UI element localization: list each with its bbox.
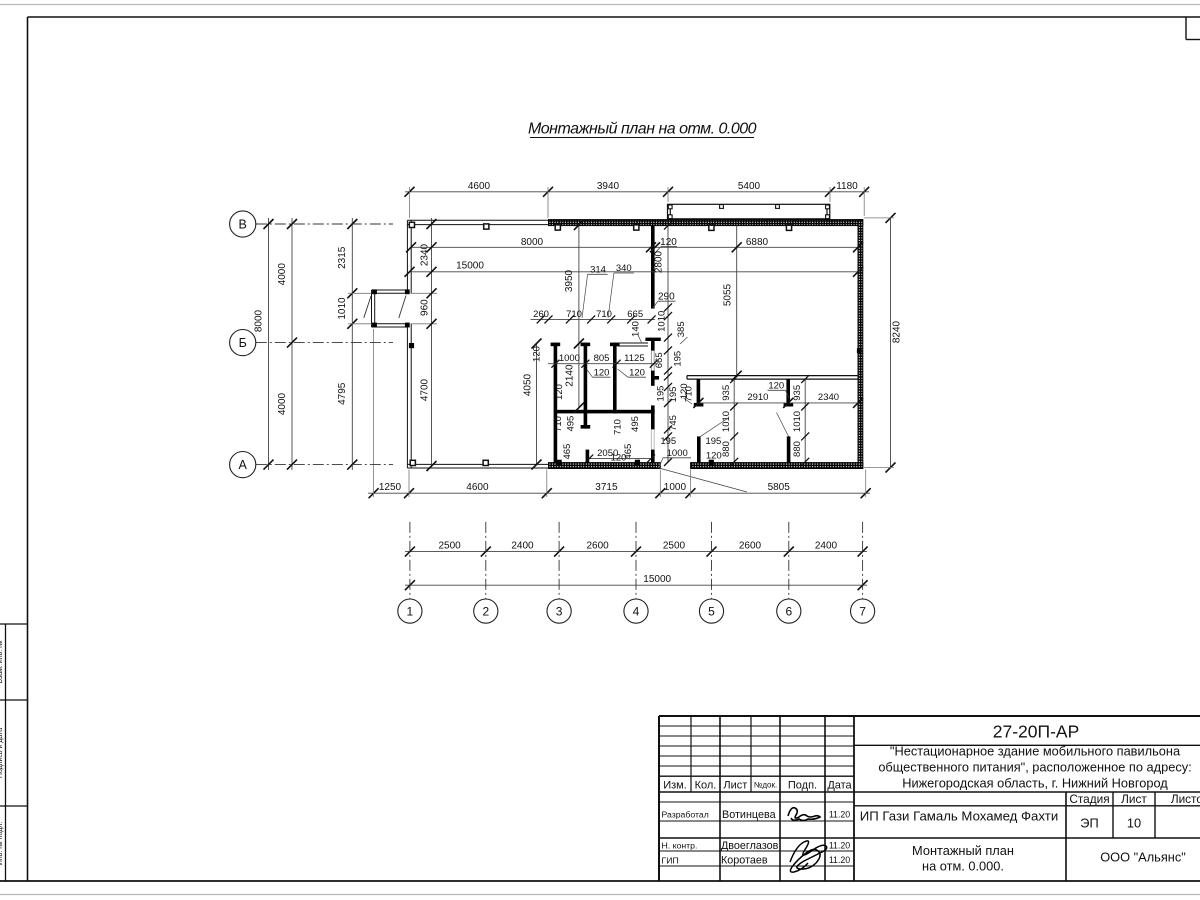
svg-text:2: 2	[482, 604, 489, 618]
svg-text:8000: 8000	[521, 237, 544, 248]
svg-text:495: 495	[630, 416, 641, 432]
svg-text:120: 120	[611, 453, 627, 464]
svg-text:140: 140	[631, 321, 642, 337]
svg-text:Н. контр.: Н. контр.	[662, 840, 698, 850]
svg-text:4050: 4050	[523, 373, 534, 396]
svg-text:Кол.: Кол.	[695, 779, 717, 791]
svg-text:1010: 1010	[657, 311, 668, 332]
svg-text:665: 665	[627, 309, 643, 320]
svg-text:195: 195	[668, 387, 679, 403]
svg-text:2800: 2800	[654, 250, 665, 273]
svg-text:Б: Б	[239, 336, 247, 350]
svg-text:В: В	[239, 218, 247, 232]
svg-text:710: 710	[613, 419, 624, 435]
svg-text:2500: 2500	[663, 540, 686, 551]
svg-text:710: 710	[566, 309, 582, 320]
svg-text:Взам. инв. №: Взам. инв. №	[0, 640, 4, 683]
svg-text:общественного питания", распол: общественного питания", расположенное по…	[878, 759, 1191, 774]
svg-text:1000: 1000	[664, 482, 687, 493]
svg-text:4795: 4795	[337, 382, 348, 405]
svg-text:5055: 5055	[723, 283, 734, 306]
svg-text:1010: 1010	[792, 411, 803, 432]
svg-text:Стадия: Стадия	[1069, 792, 1109, 806]
svg-text:8000: 8000	[254, 309, 265, 332]
svg-text:195: 195	[660, 436, 676, 447]
svg-text:195: 195	[673, 351, 684, 367]
svg-text:4700: 4700	[419, 378, 430, 401]
svg-text:120: 120	[594, 367, 610, 378]
svg-text:5805: 5805	[768, 482, 791, 493]
svg-text:465: 465	[562, 444, 573, 460]
svg-text:2400: 2400	[815, 540, 838, 551]
svg-text:1000: 1000	[559, 353, 580, 364]
svg-text:5400: 5400	[738, 181, 761, 192]
svg-text:935: 935	[721, 385, 732, 401]
svg-text:805: 805	[594, 353, 610, 364]
svg-text:11.20: 11.20	[829, 841, 850, 851]
svg-text:2600: 2600	[586, 540, 609, 551]
svg-text:1180: 1180	[836, 181, 858, 192]
svg-text:120: 120	[532, 346, 543, 362]
svg-text:4000: 4000	[277, 392, 288, 415]
svg-text:Коротаев: Коротаев	[721, 855, 768, 867]
svg-text:3: 3	[556, 604, 563, 618]
svg-text:880: 880	[792, 441, 803, 457]
svg-text:на отм. 0.000.: на отм. 0.000.	[922, 858, 1004, 873]
svg-text:340: 340	[616, 263, 632, 274]
svg-text:1250: 1250	[379, 482, 402, 493]
svg-text:Подп.: Подп.	[788, 779, 817, 791]
svg-text:Нижегородская область, г. Нижн: Нижегородская область, г. Нижний Новгоро…	[902, 775, 1168, 790]
svg-text:120: 120	[554, 384, 565, 400]
svg-text:4600: 4600	[466, 482, 489, 493]
svg-text:10: 10	[1127, 816, 1141, 831]
svg-text:710: 710	[684, 386, 695, 402]
svg-text:ГИП: ГИП	[662, 855, 679, 865]
svg-text:710: 710	[596, 309, 612, 320]
svg-text:495: 495	[566, 416, 577, 432]
svg-text:2140: 2140	[564, 364, 575, 387]
svg-text:1: 1	[407, 604, 414, 618]
svg-text:880: 880	[721, 441, 732, 457]
svg-text:2910: 2910	[747, 392, 768, 403]
svg-text:Монтажный план на отм. 0.000: Монтажный план на отм. 0.000	[528, 121, 757, 138]
svg-text:5: 5	[708, 604, 715, 618]
svg-text:745: 745	[668, 415, 679, 431]
svg-text:А: А	[239, 458, 248, 472]
svg-text:2340: 2340	[419, 243, 430, 266]
svg-text:4000: 4000	[277, 263, 288, 286]
svg-text:15000: 15000	[643, 574, 671, 585]
svg-text:195: 195	[705, 436, 721, 447]
svg-text:3950: 3950	[564, 269, 575, 292]
svg-text:1010: 1010	[337, 297, 348, 320]
svg-text:Монтажный план: Монтажный план	[912, 843, 1014, 858]
svg-text:120: 120	[706, 451, 722, 462]
svg-text:Вотинцева: Вотинцева	[722, 809, 776, 821]
svg-text:27-20П-АР: 27-20П-АР	[993, 722, 1080, 742]
svg-text:№док.: №док.	[754, 780, 777, 789]
svg-text:7: 7	[859, 604, 866, 618]
svg-text:"Нестационарное здание мобильн: "Нестационарное здание мобильного павиль…	[890, 744, 1181, 759]
svg-text:385: 385	[676, 321, 687, 337]
svg-text:Двоеглазов: Двоеглазов	[721, 840, 779, 852]
svg-text:ИП Гази Гамаль Мохамед Фахти: ИП Гази Гамаль Мохамед Фахти	[860, 809, 1058, 824]
svg-text:3940: 3940	[597, 181, 620, 192]
svg-text:Дата: Дата	[827, 779, 852, 791]
svg-text:Листов: Листов	[1171, 792, 1200, 806]
svg-text:2500: 2500	[438, 540, 461, 551]
svg-text:2400: 2400	[511, 540, 534, 551]
svg-text:8240: 8240	[891, 320, 902, 343]
svg-text:4600: 4600	[468, 181, 491, 192]
svg-text:3715: 3715	[595, 482, 618, 493]
svg-text:120: 120	[629, 367, 645, 378]
svg-text:Подпись и дата: Подпись и дата	[0, 728, 4, 778]
svg-text:Изм.: Изм.	[663, 779, 687, 791]
svg-text:195: 195	[656, 386, 667, 402]
svg-text:710: 710	[553, 416, 564, 432]
svg-text:Лист: Лист	[1121, 792, 1147, 806]
svg-text:314: 314	[590, 265, 606, 276]
svg-text:ЭП: ЭП	[1080, 816, 1098, 831]
svg-text:665: 665	[654, 352, 665, 368]
svg-text:4: 4	[633, 604, 640, 618]
svg-text:1125: 1125	[624, 353, 644, 364]
svg-text:6: 6	[785, 604, 792, 618]
svg-text:Лист: Лист	[723, 779, 747, 791]
svg-text:ООО "Альянс": ООО "Альянс"	[1100, 850, 1186, 865]
svg-text:Инв. № подл.: Инв. № подл.	[0, 822, 4, 866]
svg-text:960: 960	[419, 299, 430, 316]
svg-text:11.20: 11.20	[829, 809, 850, 819]
svg-text:2315: 2315	[337, 246, 348, 269]
svg-text:2340: 2340	[818, 392, 839, 403]
svg-text:11.20: 11.20	[829, 855, 850, 865]
svg-text:Разработал: Разработал	[662, 809, 709, 819]
svg-text:260: 260	[533, 309, 549, 320]
svg-text:15000: 15000	[456, 261, 484, 272]
svg-text:6880: 6880	[746, 237, 769, 248]
svg-text:2600: 2600	[739, 540, 762, 551]
